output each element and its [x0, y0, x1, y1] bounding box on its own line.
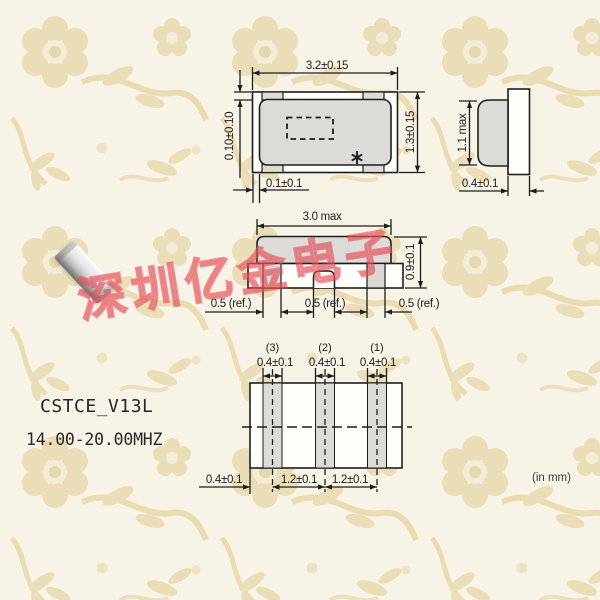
side-view-body	[478, 100, 508, 166]
front-terminal	[263, 264, 281, 289]
top-height-dim: 1.3±0.15	[405, 111, 417, 153]
technical-drawing: 3.2±0.15 1.3±0.15 0.10±0.10 0.1±0.1	[0, 0, 600, 600]
top-view: 3.2±0.15 1.3±0.15 0.10±0.10 0.1±0.1	[224, 60, 425, 203]
land-pitch-dim-2: 1.2±0.1	[332, 474, 368, 486]
product-model: CSTCE_V13L	[40, 396, 153, 417]
top-view-body	[260, 100, 392, 166]
front-ref-dim-right: 0.5 (ref.)	[399, 298, 440, 310]
front-height-dim: 0.9±0.1	[405, 244, 417, 280]
pad-number-1: (1)	[370, 342, 383, 354]
side-terminal-dim: 0.4±0.1	[462, 178, 498, 190]
pad-width-dim-3: 0.4±0.1	[257, 357, 293, 369]
pad-number-2: (2)	[318, 342, 331, 354]
pad-width-dim-2: 0.4±0.1	[309, 357, 345, 369]
front-view-body	[257, 237, 391, 264]
land-pattern: (3) (2) (1) 0.4±0.1 0.4±0.1 0.4±0.1 0.4±…	[199, 342, 412, 494]
land-pad	[368, 383, 387, 468]
top-side-inset-dim: 0.1±0.1	[266, 178, 302, 190]
front-terminal	[367, 264, 385, 289]
front-ref-dim-center: 0.5 (ref.)	[305, 298, 346, 310]
front-ref-dim-left: 0.5 (ref.)	[211, 298, 252, 310]
land-edge-offset-dim: 0.4±0.1	[206, 474, 242, 486]
product-frequency-range: 14.00-20.00MHZ	[26, 430, 162, 449]
top-width-dim: 3.2±0.15	[306, 60, 348, 72]
land-pitch-dim-1: 1.2±0.1	[281, 474, 317, 486]
pad-number-3: (3)	[266, 342, 279, 354]
product-image: 3.2±0.15 1.3±0.15 0.10±0.10 0.1±0.1	[0, 0, 600, 600]
side-height-dim: 1.1 max	[457, 113, 469, 152]
land-pad	[263, 383, 282, 468]
side-view: 1.1 max 0.4±0.1	[457, 89, 544, 196]
top-lid-inset-dim: 0.10±0.10	[224, 112, 236, 160]
front-center-notch	[314, 271, 335, 288]
front-width-dim: 3.0 max	[303, 211, 342, 223]
side-view-terminal	[508, 89, 530, 175]
front-view: 3.0 max 0.9±0.1 0.5 (ref.) 0.5 (ref.) 0.…	[205, 211, 440, 318]
units-note: (in mm)	[532, 472, 571, 484]
pad-width-dim-1: 0.4±0.1	[360, 357, 396, 369]
land-pad	[316, 383, 335, 468]
